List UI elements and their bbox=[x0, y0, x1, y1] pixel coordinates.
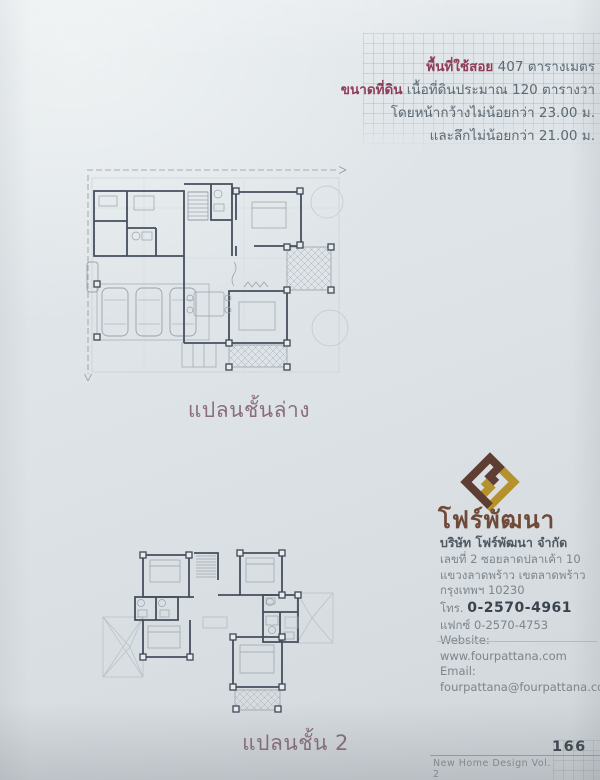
land-size-value: เนื้อที่ดินประมาณ 120 ตารางวา bbox=[403, 82, 596, 98]
usable-area-line: พื้นที่ใช้สอย 407 ตารางเมตร bbox=[341, 56, 595, 79]
company-phone-line: โทร. 0-2570-4961 bbox=[440, 599, 598, 618]
company-info-block: บริษัท โฟร์พัฒนา จำกัด เลขที่ 2 ซอยลาดปล… bbox=[440, 534, 598, 695]
company-address-line: เลขที่ 2 ซอยลาดปลาเค้า 10 bbox=[440, 552, 598, 568]
usable-area-label: พื้นที่ใช้สอย bbox=[426, 59, 493, 75]
second-floor-plan bbox=[100, 540, 362, 722]
book-page: พื้นที่ใช้สอย 407 ตารางเมตร ขนาดที่ดิน เ… bbox=[0, 0, 600, 780]
land-width-line: โดยหน้ากว้างไม่น้อยกว่า 23.00 ม. bbox=[341, 102, 595, 125]
spec-info-box: พื้นที่ใช้สอย 407 ตารางเมตร ขนาดที่ดิน เ… bbox=[341, 56, 595, 148]
usable-area-value: 407 ตารางเมตร bbox=[493, 59, 595, 75]
second-floor-plan-label: แปลนชั้น 2 bbox=[228, 727, 363, 760]
company-email-line: Email: fourpattana@fourpattana.com bbox=[440, 664, 598, 695]
company-website-line: Website: www.fourpattana.com bbox=[440, 633, 598, 664]
divider-line bbox=[437, 641, 597, 642]
ground-floor-plan bbox=[84, 162, 352, 388]
company-fax-line: แฟกซ์ 0-2570-4753 bbox=[440, 618, 598, 634]
phone-label: โทร. bbox=[440, 601, 467, 615]
page-number: 166 bbox=[552, 739, 592, 755]
ground-floor-plan-label: แปลนชั้นล่าง bbox=[160, 394, 310, 427]
company-address-line: กรุงเทพฯ 10230 bbox=[440, 583, 598, 599]
land-size-line: ขนาดที่ดิน เนื้อที่ดินประมาณ 120 ตารางวา bbox=[341, 79, 595, 102]
footer-divider-line bbox=[430, 755, 600, 756]
land-depth-line: และลึกไม่น้อยกว่า 21.00 ม. bbox=[341, 125, 595, 148]
company-full-name: บริษัท โฟร์พัฒนา จำกัด bbox=[440, 534, 598, 552]
phone-number: 0-2570-4961 bbox=[467, 600, 572, 616]
company-address-line: แขวงลาดพร้าว เขตลาดพร้าว bbox=[440, 568, 598, 584]
book-title: New Home Design Vol. 2 bbox=[433, 758, 558, 780]
land-size-label: ขนาดที่ดิน bbox=[341, 82, 403, 98]
